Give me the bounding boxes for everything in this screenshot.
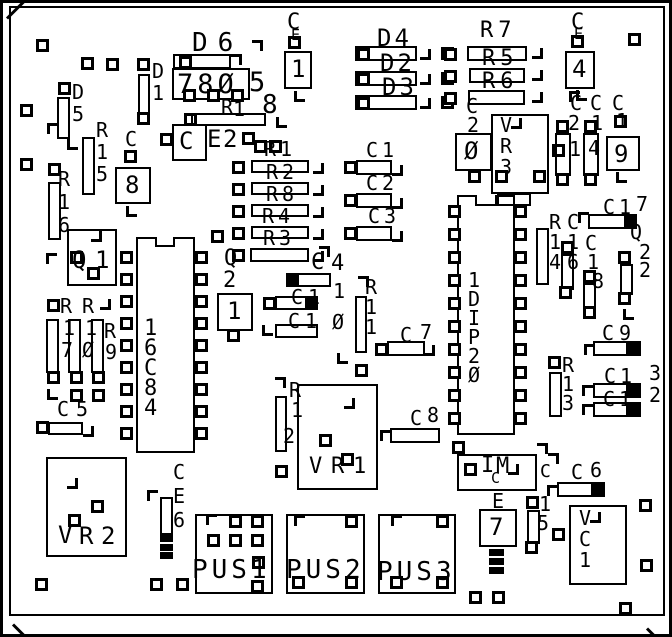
solder-pad (251, 534, 264, 547)
solder-pad (251, 515, 264, 528)
label-r9-r: R (104, 321, 116, 341)
solder-pad (81, 57, 94, 70)
solder-pad (468, 170, 481, 183)
label-vr1-r: R (331, 456, 344, 478)
pad-fill (626, 342, 640, 355)
solder-pad (275, 465, 288, 478)
label-ce7-e: E (492, 491, 504, 511)
label-d6: D6 (192, 30, 243, 56)
solder-pad (195, 361, 208, 374)
label-c4-4: 4 (331, 253, 344, 275)
label-ce1-1: 1 (291, 57, 305, 81)
label-r17-7: 7 (61, 340, 73, 360)
solder-pad (120, 405, 133, 418)
pad-fill (305, 297, 317, 309)
pad-mark (91, 231, 102, 242)
pad-mark (126, 206, 137, 217)
label-q1-1: 1 (95, 248, 109, 272)
label-r14: R 1 4 (549, 212, 561, 272)
solder-pad (195, 427, 208, 440)
pad-fill (591, 483, 604, 496)
label-c8a: C (125, 129, 137, 149)
solder-pad (448, 412, 461, 425)
solder-pad (525, 541, 538, 554)
label-c20-0: Ø (464, 139, 478, 163)
label-r17-1: 1 (63, 318, 75, 338)
label-r13: R 1 3 (562, 356, 574, 413)
solder-pad (548, 356, 561, 369)
label-q2m-1: 1 (227, 299, 241, 323)
label-c11-1b: 1 (333, 281, 345, 301)
label-ce2-c: C (179, 129, 193, 153)
label-r7: R7 (480, 20, 517, 42)
label-c21-1: 1 (569, 139, 581, 159)
board-chamfer-br (646, 627, 665, 637)
solder-pad (227, 329, 240, 342)
solder-pad (120, 251, 133, 264)
pad-mark (47, 123, 58, 134)
solder-pad (357, 97, 370, 110)
pad-fill (626, 403, 639, 416)
label-pus2: PUS2 (286, 557, 365, 583)
solder-pad (584, 173, 597, 186)
solder-pad (514, 274, 527, 287)
label-vc1: V C 1 (579, 508, 591, 571)
solder-pad (444, 92, 457, 105)
solder-pad (229, 515, 242, 528)
solder-pad (345, 515, 358, 528)
solder-pad (628, 33, 641, 46)
pad-mark (313, 185, 324, 196)
pad-mark (420, 98, 431, 109)
label-vr3: V R 3 (500, 115, 512, 178)
solder-pad (91, 500, 104, 513)
solder-pad (120, 273, 133, 286)
solder-pad (448, 389, 461, 402)
solder-pad (106, 58, 119, 71)
solder-pad (47, 371, 60, 384)
pad-mark (623, 309, 634, 320)
label-c19-9: 9 (614, 142, 628, 166)
pad-mark (206, 514, 217, 525)
pad-mark (276, 117, 287, 128)
solder-pad (207, 534, 220, 547)
solder-pad (120, 361, 133, 374)
label-c8-8: 8 (427, 405, 439, 425)
pad-mark (344, 398, 355, 409)
label-r8: R8 (266, 184, 298, 204)
solder-pad (583, 306, 596, 319)
pad-fill (160, 544, 173, 551)
label-q1-q: Q (72, 248, 86, 272)
solder-pad (20, 158, 33, 171)
solder-pad (448, 343, 461, 356)
label-c6-6: 6 (590, 460, 602, 480)
ic-notch-16c84 (155, 237, 175, 247)
solder-pad (559, 286, 572, 299)
label-c13-3: 3 (649, 363, 661, 383)
solder-pad (357, 48, 370, 61)
ic-notch-dip20 (475, 195, 497, 206)
label-c3: C3 (368, 206, 400, 226)
solder-pad (120, 317, 133, 330)
label-c9-9: 9 (619, 323, 631, 343)
solder-pad (618, 292, 631, 305)
outline-dip20 (457, 195, 515, 435)
outline-c16 (561, 254, 574, 290)
solder-pad (195, 317, 208, 330)
solder-pad (514, 205, 527, 218)
outline-r12 (275, 396, 287, 452)
solder-pad (207, 89, 220, 102)
solder-pad (120, 295, 133, 308)
solder-pad (229, 534, 242, 547)
pad-mark (231, 54, 242, 65)
pad-mark (391, 515, 402, 526)
label-r1: R1 (264, 139, 296, 159)
label-ce2-e: E (207, 127, 221, 151)
outline-d5 (57, 97, 70, 139)
solder-pad (448, 251, 461, 264)
label-ce4-4: 4 (572, 57, 586, 81)
outline-r11 (355, 296, 367, 353)
label-pus1: PUS1 (192, 557, 271, 583)
solder-pad (469, 591, 482, 604)
solder-pad (495, 170, 508, 183)
label-r3: R3 (263, 228, 295, 248)
solder-pad (448, 205, 461, 218)
solder-pad (514, 320, 527, 333)
pad-mark (147, 490, 158, 501)
label-ce6: C E 6 (173, 460, 185, 532)
solder-pad (92, 371, 105, 384)
label-d1: D 1 (152, 60, 164, 104)
pad-mark (420, 49, 431, 60)
pad-mark (294, 515, 305, 526)
outline-c15 (527, 510, 540, 544)
label-c17-7: 7 (636, 194, 648, 214)
solder-pad (195, 273, 208, 286)
solder-pad (556, 120, 569, 133)
solder-pad (448, 274, 461, 287)
label-r2: R2 (266, 162, 298, 182)
solder-pad (47, 299, 60, 312)
label-q2m-2: 2 (223, 270, 236, 292)
pad-mark (532, 92, 543, 103)
label-r17-r: R (60, 296, 72, 316)
solder-pad (583, 270, 596, 283)
solder-pad (70, 371, 83, 384)
pad-mark (313, 229, 324, 240)
outline-c5 (48, 422, 83, 435)
label-c2: C2 (366, 173, 398, 193)
label-c21-2: 2 (568, 113, 580, 133)
solder-pad (448, 297, 461, 310)
label-c8a-digit: 8 (125, 173, 139, 197)
label-dip20: 1 D I P 2 Ø (468, 271, 480, 385)
solder-pad (514, 412, 527, 425)
pad-mark (511, 118, 522, 129)
pad-mark (420, 74, 431, 85)
pad-mark (508, 464, 519, 475)
label-ce1-e: E (291, 28, 300, 43)
pad-mark (582, 404, 593, 415)
label-r4: R4 (262, 206, 294, 226)
solder-pad (552, 528, 565, 541)
label-vr1-1: 1 (353, 456, 366, 478)
pad-fill (489, 558, 504, 565)
pad-mark (83, 426, 94, 437)
solder-pad (195, 405, 208, 418)
label-c15-c: C (540, 463, 551, 481)
pad-fill (160, 552, 173, 559)
pad-fill (160, 535, 173, 542)
pad-mark (392, 231, 403, 242)
solder-pad (448, 366, 461, 379)
pad-mark (262, 325, 273, 336)
outline-c10 (275, 324, 318, 338)
label-r15: R 1 5 (96, 119, 108, 185)
solder-pad (35, 578, 48, 591)
outline-r14 (536, 228, 549, 285)
label-q2-q: Q (630, 222, 642, 242)
pad-mark (582, 385, 593, 396)
pad-mark (424, 345, 435, 356)
label-q2m-q: Q (224, 248, 237, 270)
solder-pad (232, 205, 245, 218)
solder-pad (448, 320, 461, 333)
solder-pad (92, 389, 105, 402)
solder-pad (355, 364, 368, 377)
solder-pad (514, 366, 527, 379)
label-c8-c: C (410, 408, 422, 428)
solder-pad (195, 251, 208, 264)
label-c7-7: 7 (420, 322, 432, 342)
outline-r16 (48, 182, 61, 240)
pad-d5 (58, 82, 71, 95)
pcb-layout-canvas: D 5D 1R 1 5R 1 6C8D678Ø5R18CE2CE1R1R2R8R… (0, 0, 672, 637)
pad-mark (100, 299, 111, 310)
solder-pad (232, 183, 245, 196)
outline-c8 (390, 428, 440, 443)
pad-mark (537, 443, 548, 454)
label-vr2-v: V (58, 523, 72, 547)
pad-mark (67, 478, 78, 489)
outline-r15 (82, 137, 95, 195)
label-c10-0: Ø (332, 312, 344, 332)
label-vr2-2: 2 (101, 524, 115, 548)
solder-pad (20, 104, 33, 117)
solder-pad (195, 295, 208, 308)
label-c5-5: 5 (76, 399, 88, 419)
solder-pad (639, 499, 652, 512)
pad-mark (313, 207, 324, 218)
pad-mark (294, 91, 305, 102)
pad-mark (67, 139, 78, 150)
solder-pad (124, 150, 137, 163)
solder-pad (514, 389, 527, 402)
solder-pad (195, 383, 208, 396)
label-vr1-v: V (309, 456, 322, 478)
solder-pad (211, 230, 224, 243)
pad-fill (489, 549, 504, 556)
outline-r13 (549, 372, 562, 417)
outline-r17 (46, 319, 59, 373)
pad-mark (252, 40, 263, 51)
solder-pad (561, 241, 574, 254)
label-c20-2: 2 (467, 115, 479, 135)
pad-mark (532, 70, 543, 81)
solder-pad (137, 112, 150, 125)
pad-d1 (137, 58, 150, 71)
solder-pad (492, 591, 505, 604)
solder-pad (444, 70, 457, 83)
label-c5-c: C (57, 399, 69, 419)
solder-pad (183, 89, 196, 102)
solder-pad (514, 251, 527, 264)
solder-pad (176, 578, 189, 591)
solder-pad (533, 170, 546, 183)
solder-pad (357, 73, 370, 86)
solder-pad (232, 227, 245, 240)
board-chamfer-bl (12, 623, 31, 637)
label-c4-c: C (311, 252, 324, 274)
label-vr2-r: R (79, 524, 93, 548)
pad-mark (313, 163, 324, 174)
solder-pad (618, 251, 631, 264)
solder-pad (514, 228, 527, 241)
label-c19-1: 1 (616, 111, 628, 131)
solder-pad (195, 339, 208, 352)
label-16c84: 1 6 C 8 4 (144, 319, 157, 419)
solder-pad (263, 297, 276, 310)
solder-pad (640, 559, 653, 572)
solder-pad (232, 161, 245, 174)
pad-mark (616, 172, 627, 183)
label-r5: R5 (482, 48, 519, 70)
label-ce7-7: 7 (489, 515, 503, 539)
label-d5: D 5 (72, 81, 84, 125)
label-r9-9: 9 (105, 342, 117, 362)
label-c14-c: C (590, 93, 602, 113)
label-r10-1: 1 (85, 318, 97, 338)
solder-pad (436, 515, 449, 528)
label-r10-0: Ø (82, 340, 94, 360)
solder-pad (120, 427, 133, 440)
solder-pad (464, 463, 477, 476)
label-c12-2: 2 (649, 385, 661, 405)
label-c6-c: C (571, 462, 583, 482)
pad-mark (337, 353, 348, 364)
label-ce2-2: 2 (223, 127, 237, 151)
solder-pad (444, 48, 457, 61)
solder-pad (619, 602, 632, 615)
solder-pad (526, 496, 539, 509)
outline-ce6 (160, 497, 173, 535)
label-ce4-e: E (574, 27, 583, 42)
label-q2-2b: 2 (639, 260, 651, 280)
pad-mark (275, 377, 286, 388)
outline-c3 (356, 226, 392, 241)
solder-pad (150, 578, 163, 591)
label-r10-r: R (82, 296, 94, 316)
solder-pad (514, 343, 527, 356)
solder-pad (452, 441, 465, 454)
label-ce7-c: C (491, 471, 500, 486)
pad-mark (590, 512, 601, 523)
pad-mark (46, 253, 57, 264)
label-c14-4: 4 (588, 138, 600, 158)
label-pus3: PUS3 (377, 559, 456, 585)
pad-mark (532, 48, 543, 59)
solder-pad (36, 39, 49, 52)
solder-pad (120, 383, 133, 396)
solder-pad (514, 297, 527, 310)
outline-c7 (387, 341, 425, 356)
solder-pad (120, 339, 133, 352)
pad-fill (489, 567, 504, 574)
solder-pad (556, 173, 569, 186)
label-c21-c: C (570, 93, 582, 113)
label-c9-c: C (602, 323, 614, 343)
solder-pad (448, 228, 461, 241)
outline-r3 (250, 248, 309, 262)
outline-q2 (620, 264, 633, 295)
solder-pad (584, 120, 597, 133)
solder-pad (319, 434, 332, 447)
label-c1: C1 (366, 140, 398, 160)
